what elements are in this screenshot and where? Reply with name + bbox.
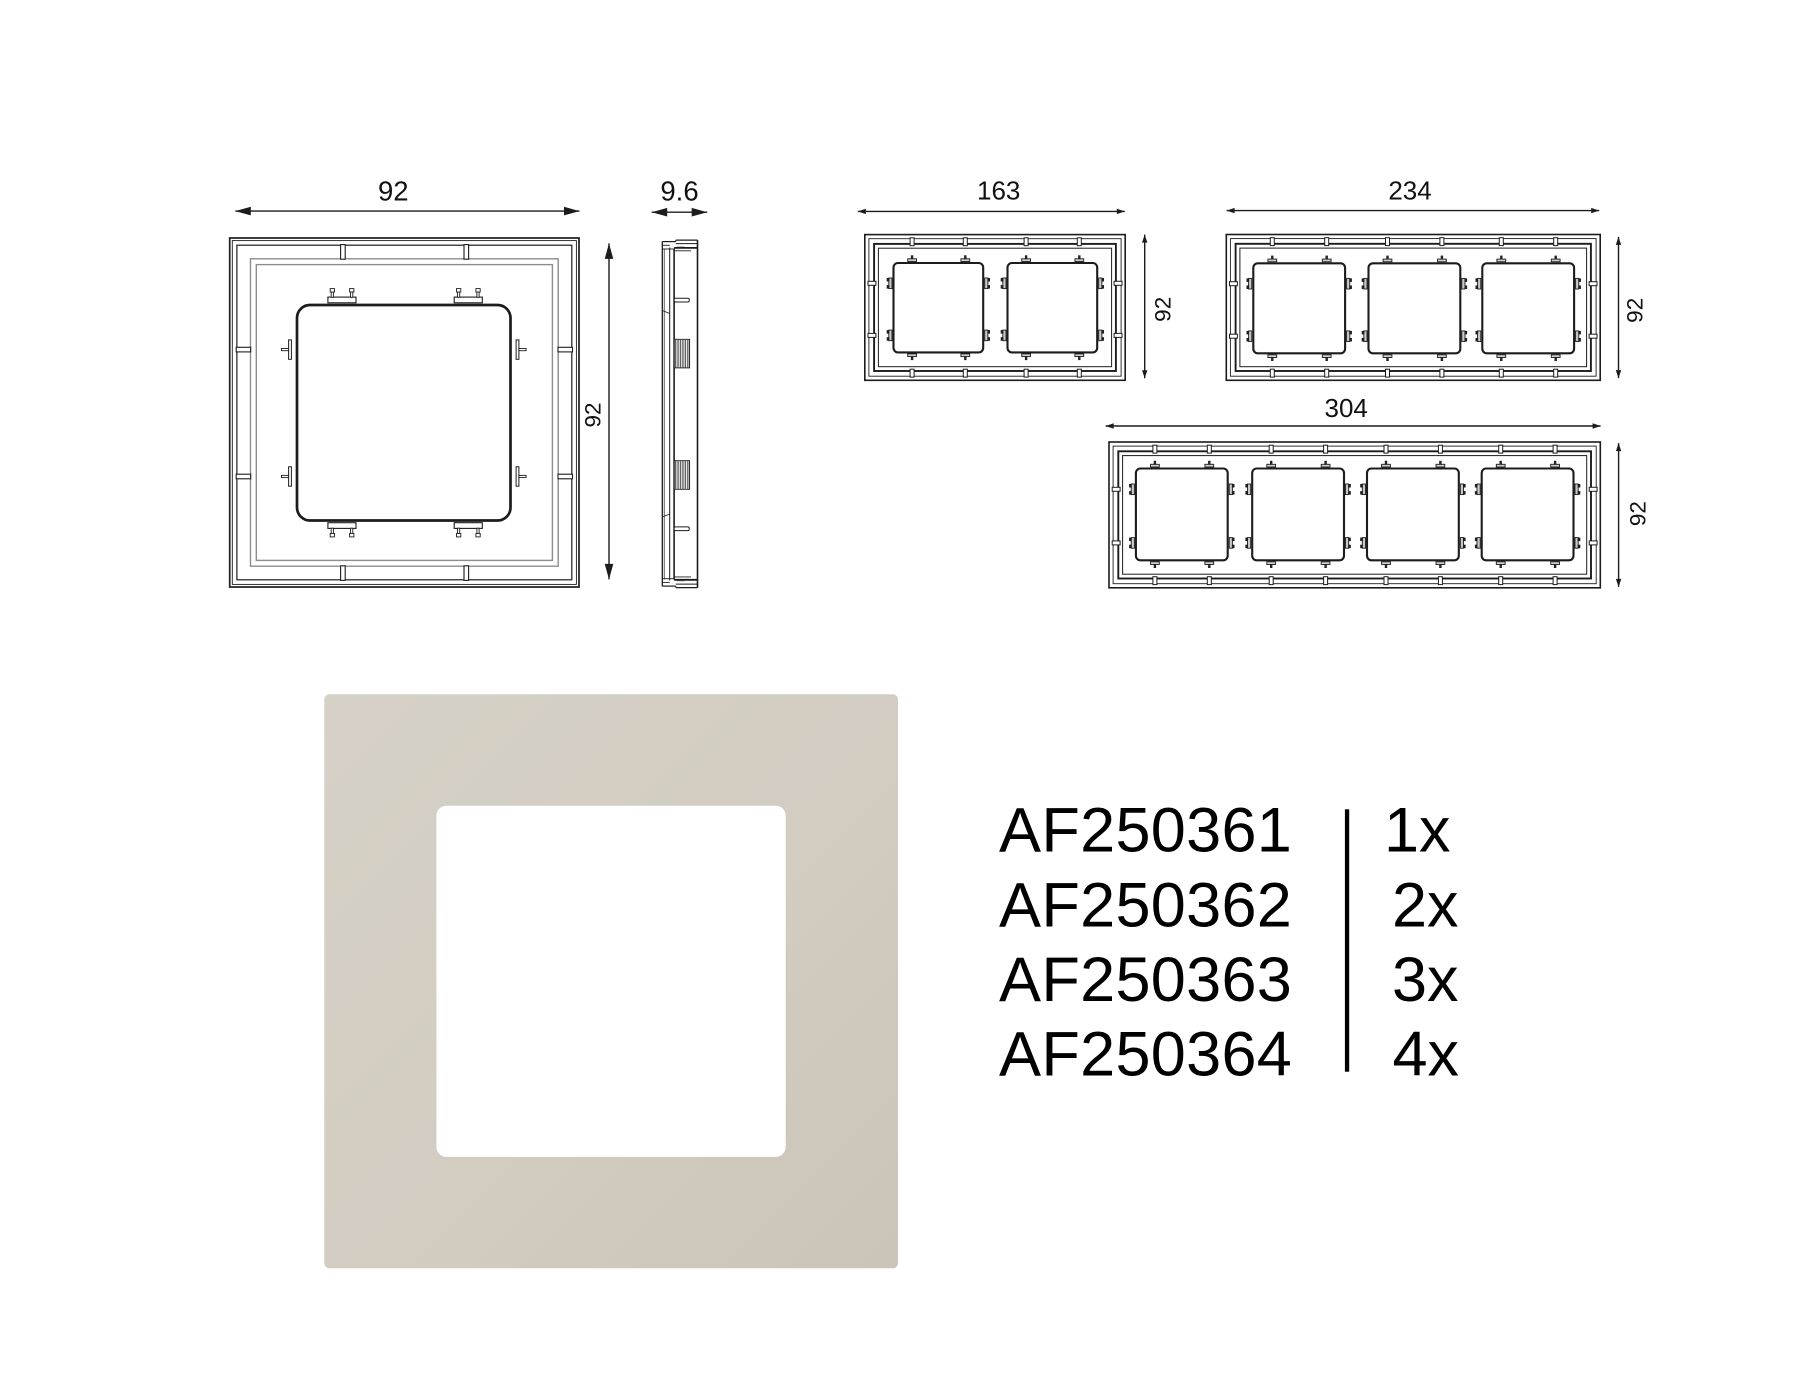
svg-text:92: 92 bbox=[580, 402, 605, 427]
svg-text:AF250361: AF250361 bbox=[999, 796, 1292, 866]
svg-text:AF250364: AF250364 bbox=[999, 1020, 1292, 1090]
svg-text:AF250363: AF250363 bbox=[999, 945, 1292, 1015]
svg-text:9.6: 9.6 bbox=[660, 176, 698, 207]
svg-text:92: 92 bbox=[1623, 298, 1648, 323]
svg-text:92: 92 bbox=[1150, 297, 1175, 322]
svg-text:4x: 4x bbox=[1393, 1020, 1460, 1090]
svg-text:1x: 1x bbox=[1384, 796, 1451, 866]
svg-text:304: 304 bbox=[1325, 393, 1368, 423]
svg-text:92: 92 bbox=[1626, 501, 1651, 526]
svg-text:AF250362: AF250362 bbox=[999, 870, 1292, 940]
svg-text:2x: 2x bbox=[1392, 870, 1459, 940]
svg-text:3x: 3x bbox=[1392, 945, 1459, 1015]
svg-text:92: 92 bbox=[378, 176, 409, 207]
svg-text:163: 163 bbox=[977, 175, 1020, 205]
svg-text:234: 234 bbox=[1388, 175, 1431, 205]
